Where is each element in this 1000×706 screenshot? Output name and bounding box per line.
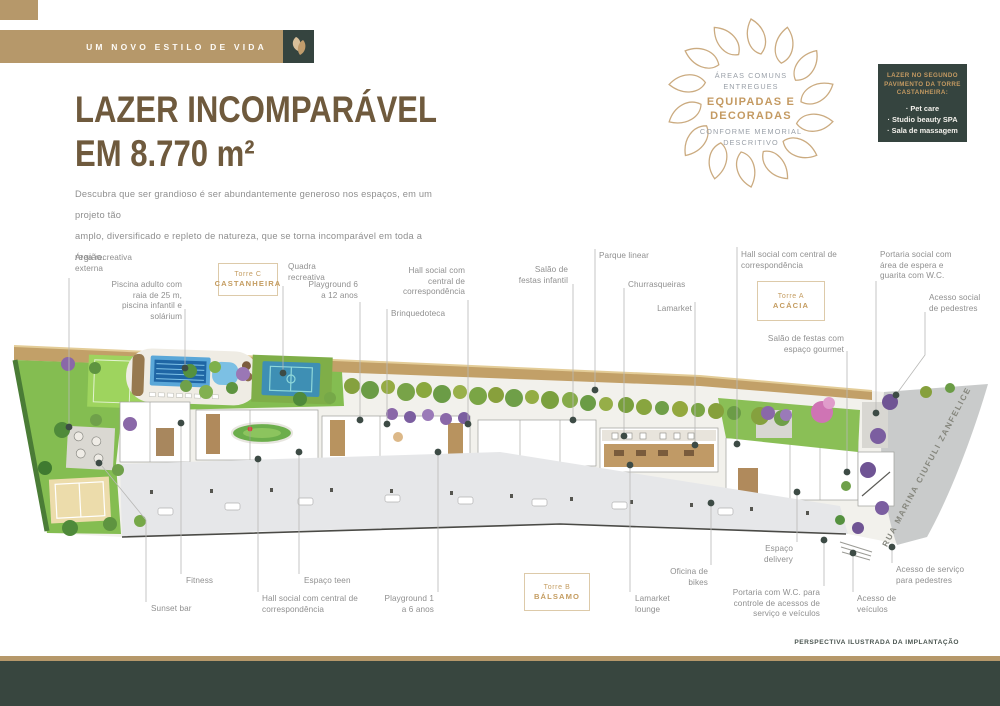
callout-hall-social-b: Hall social com central de correspondênc… bbox=[262, 594, 366, 615]
callout-churrasqueiras: Churrasqueiras bbox=[628, 280, 708, 291]
callout-piscina: Piscina adulto com raia de 25 m, piscina… bbox=[110, 280, 182, 323]
site-plan-illustration: RUA MARINA CIUFULI ZANFELICE bbox=[0, 0, 1000, 706]
tower-a-label: Torre A bbox=[778, 293, 804, 300]
service-steps bbox=[840, 542, 872, 560]
tower-c-name: CASTANHEIRA bbox=[215, 279, 282, 288]
callout-acesso-servico: Acesso de serviço para pedestres bbox=[896, 565, 968, 586]
callout-lamarket-lounge: Lamarket lounge bbox=[635, 594, 685, 615]
sunset-bar-plaza bbox=[66, 426, 115, 470]
volleyball-court bbox=[49, 476, 111, 523]
brochure-page: UM NOVO ESTILO DE VIDA LAZER INCOMPARÁVE… bbox=[0, 0, 1000, 706]
tower-c-label: Torre C bbox=[234, 271, 261, 278]
callout-portaria-servico: Portaria com W.C. para controle de acess… bbox=[728, 588, 820, 620]
callout-fitness: Fitness bbox=[186, 576, 236, 587]
callout-area-recreativa: Área recreativa externa bbox=[75, 253, 145, 274]
quadra-recreativa bbox=[251, 355, 333, 405]
callout-playground-1-6: Playground 1 a 6 anos bbox=[382, 594, 434, 615]
plan-caption: PERSPECTIVA ILUSTRADA DA IMPLANTAÇÃO bbox=[794, 639, 959, 646]
tower-b-box: Torre B BÁLSAMO bbox=[524, 573, 590, 611]
callout-brinquedoteca: Brinquedoteca bbox=[391, 309, 471, 320]
tower-a-name: ACÁCIA bbox=[773, 301, 809, 310]
callout-espaco-delivery: Espaço delivery bbox=[743, 544, 793, 565]
callout-hall-social-c: Hall social com central de correspondênc… bbox=[395, 266, 465, 298]
tower-b-label: Torre B bbox=[544, 584, 571, 591]
callout-oficina-bikes: Oficina de bikes bbox=[656, 567, 708, 588]
callout-acesso-veiculos: Acesso de veículos bbox=[857, 594, 903, 615]
tower-b-name: BÁLSAMO bbox=[534, 592, 580, 601]
callout-acesso-social: Acesso social de pedestres bbox=[929, 293, 991, 314]
footer-bar bbox=[0, 661, 1000, 706]
callout-sunset-bar: Sunset bar bbox=[151, 604, 211, 615]
callout-salao-festas-infantil: Salão de festas infantil bbox=[512, 265, 568, 286]
callout-lamarket: Lamarket bbox=[640, 304, 692, 315]
callout-hall-social-a: Hall social com central de correspondênc… bbox=[741, 250, 837, 271]
tower-a-box: Torre A ACÁCIA bbox=[757, 281, 825, 321]
tower-c-box: Torre C CASTANHEIRA bbox=[218, 263, 278, 296]
callout-parque-linear: Parque linear bbox=[599, 251, 679, 262]
callout-portaria-social: Portaria social com área de espera e gua… bbox=[880, 250, 960, 282]
callout-playground-6-12: Playground 6 a 12 anos bbox=[306, 280, 358, 301]
callout-espaco-teen: Espaço teen bbox=[304, 576, 374, 587]
callout-salao-festas-gourmet: Salão de festas com espaço gourmet bbox=[762, 334, 844, 355]
